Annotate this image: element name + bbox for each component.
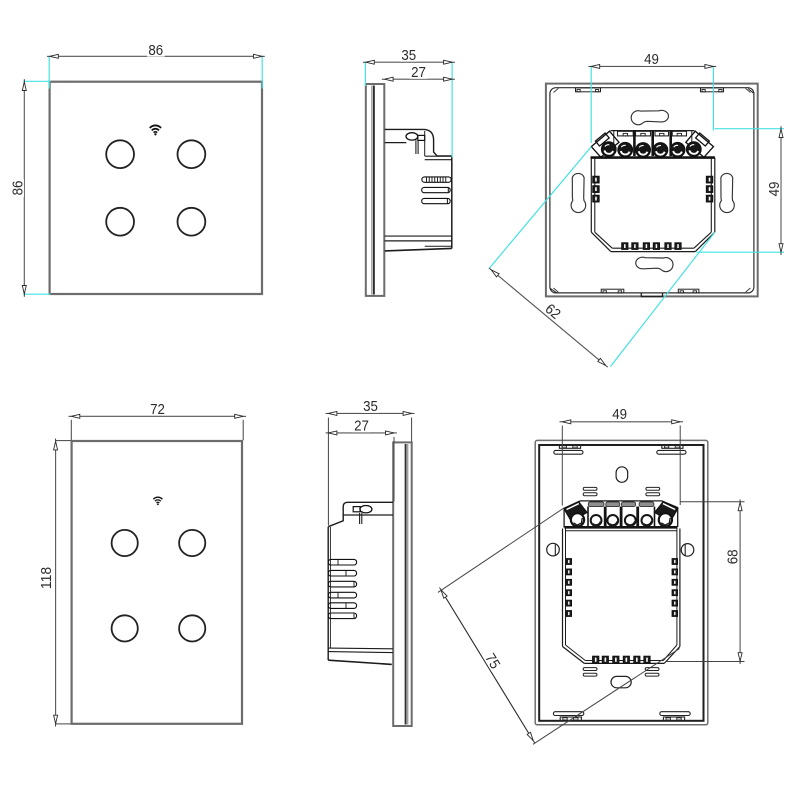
svg-text:49: 49 bbox=[644, 52, 659, 68]
svg-text:86: 86 bbox=[148, 43, 163, 59]
svg-text:86: 86 bbox=[10, 181, 26, 196]
svg-text:49: 49 bbox=[767, 182, 783, 197]
svg-text:35: 35 bbox=[401, 48, 416, 64]
svg-text:35: 35 bbox=[363, 399, 378, 415]
svg-text:72: 72 bbox=[150, 402, 165, 418]
svg-text:49: 49 bbox=[612, 407, 627, 423]
svg-text:68: 68 bbox=[726, 549, 742, 564]
svg-text:27: 27 bbox=[411, 65, 426, 81]
svg-text:118: 118 bbox=[39, 567, 55, 589]
svg-text:27: 27 bbox=[354, 419, 369, 435]
